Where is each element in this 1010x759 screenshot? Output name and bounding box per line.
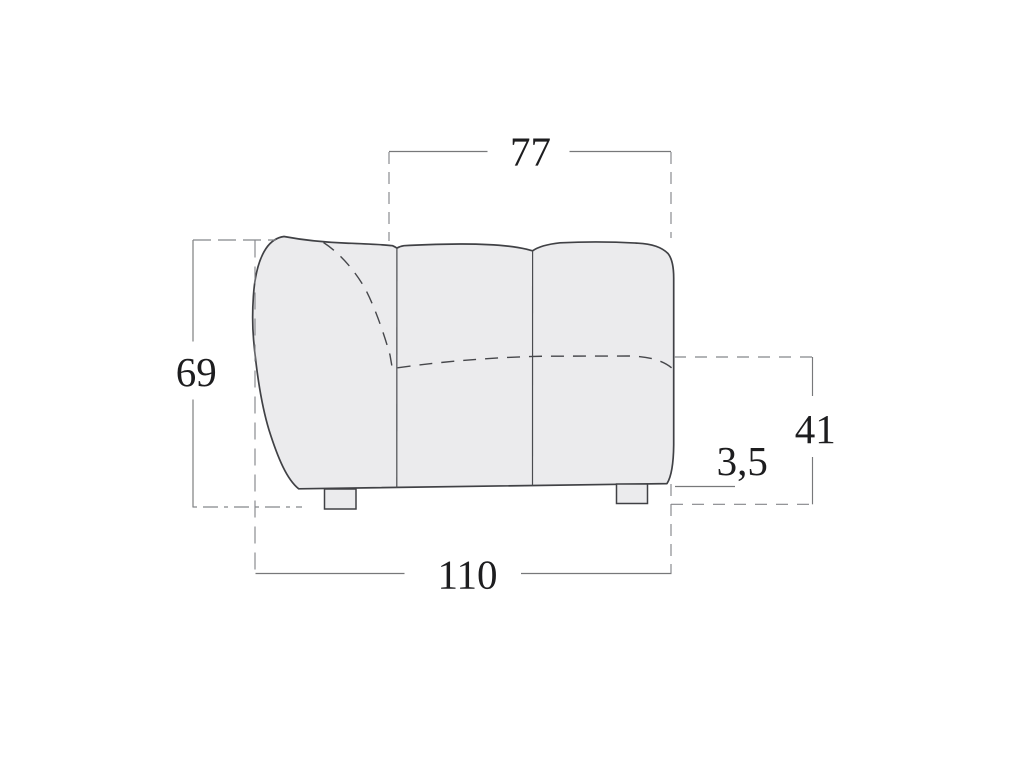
- svg-text:3,5: 3,5: [717, 438, 768, 484]
- svg-text:41: 41: [795, 406, 836, 452]
- svg-text:69: 69: [176, 349, 217, 395]
- svg-text:110: 110: [438, 552, 498, 598]
- svg-text:77: 77: [510, 129, 551, 175]
